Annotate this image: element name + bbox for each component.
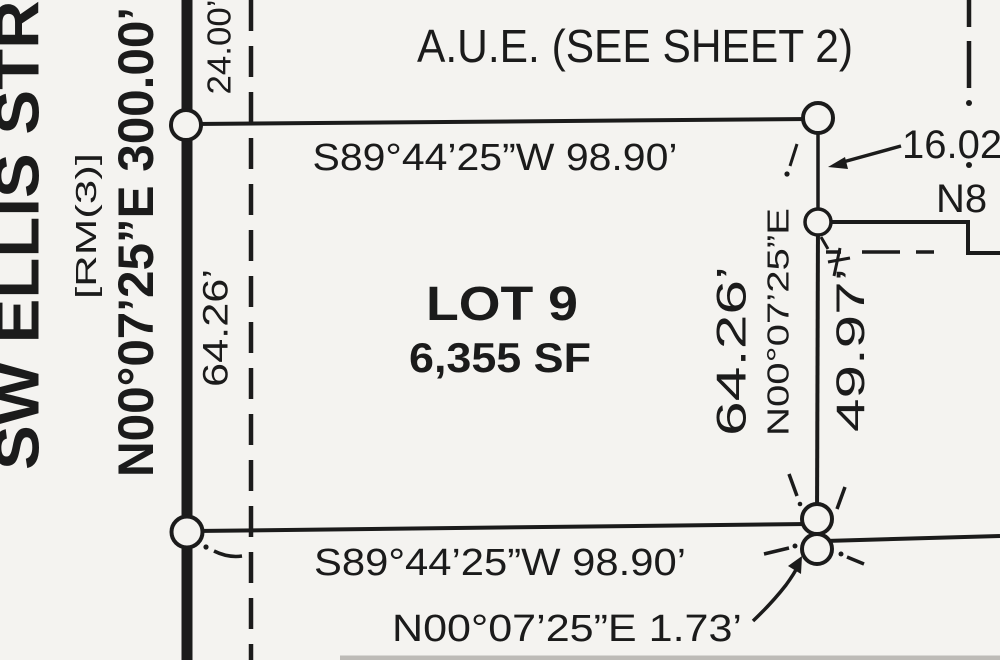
scan-edge-artifact	[340, 656, 1000, 660]
monument-marker-east-corner	[805, 209, 831, 235]
monument-marker-northeast	[803, 103, 833, 133]
west-boundary-dimension: 64.26’	[197, 269, 236, 387]
plat-drawing: SW ELLIS STREET N00°07’25”E 300.00’ [RM(…	[0, 0, 1000, 660]
north-offset-dimension: 24.00’	[201, 0, 238, 95]
south-tie-dimension: N00°07’25”E 1.73’	[392, 608, 742, 650]
partial-neighbor-bearing: N8	[936, 177, 987, 221]
monument-marker-southwest	[172, 517, 203, 548]
lot-name-label: LOT 9	[426, 278, 578, 331]
street-name-label: SW ELLIS STREET	[0, 0, 53, 470]
street-bearing-label: N00°07’25”E 300.00’	[108, 7, 164, 477]
north-tie-dimension: 16.02	[902, 123, 1000, 167]
north-boundary-bearing: S89°44’25”W 98.90’	[313, 137, 678, 179]
reference-monument-label: [RM(3)]	[71, 153, 103, 299]
east-boundary-line	[817, 222, 818, 519]
easement-note-label: A.U.E. (SEE SHEET 2)	[417, 20, 853, 72]
lot-area-label: 6,355 SF	[409, 334, 591, 381]
monument-marker-southeast-lower	[802, 534, 832, 564]
plat-sheet: SW ELLIS STREET N00°07’25”E 300.00’ [RM(…	[0, 0, 1000, 660]
monument-marker-southeast-upper	[802, 504, 832, 534]
east-boundary-bearing: N00°07’25”E	[761, 208, 796, 436]
east-boundary-dimension: 64.26’	[708, 266, 755, 436]
monument-marker-northwest	[171, 110, 201, 140]
east-south-dimension: 49.97’	[829, 268, 873, 432]
south-boundary-bearing: S89°44’25”W 98.90’	[314, 542, 686, 584]
